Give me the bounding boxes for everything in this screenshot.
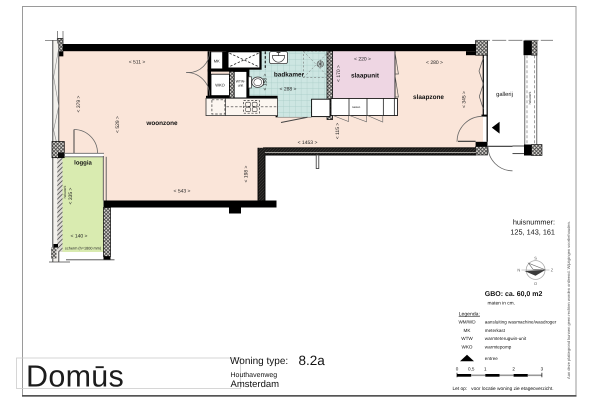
svg-text:125, 143, 161: 125, 143, 161 — [510, 228, 555, 237]
svg-text:< 288 >: < 288 > — [280, 86, 297, 92]
svg-text:< 335 >: < 335 > — [68, 187, 74, 204]
svg-text:warmteterugwin-unit: warmteterugwin-unit — [485, 336, 527, 341]
svg-text:N: N — [517, 268, 520, 273]
svg-text:maten in cm.: maten in cm. — [488, 300, 515, 306]
svg-text:< 529 >: < 529 > — [115, 116, 121, 133]
svg-text:< 1453 >: < 1453 > — [298, 140, 318, 146]
svg-text:scherm (h=1800 mm): scherm (h=1800 mm) — [65, 247, 102, 251]
svg-text:Domūs: Domūs — [26, 359, 124, 393]
svg-text:woonzone: woonzone — [145, 120, 178, 127]
svg-text:< 511 >: < 511 > — [129, 60, 146, 66]
svg-text:< 198 >: < 198 > — [244, 165, 250, 182]
svg-text:< 345 >: < 345 > — [462, 91, 468, 108]
svg-text:Woning type:: Woning type: — [230, 356, 288, 367]
svg-text:warmtepomp: warmtepomp — [485, 345, 512, 350]
svg-text:Houthavenweg: Houthavenweg — [231, 371, 278, 379]
svg-text:slaapzone: slaapzone — [413, 94, 444, 101]
svg-text:WKO: WKO — [215, 83, 225, 88]
svg-text:kasten: kasten — [352, 106, 360, 109]
svg-text:huisnummer:: huisnummer: — [513, 218, 555, 227]
svg-text:3: 3 — [541, 367, 544, 372]
svg-text:< 158 >: < 158 > — [263, 73, 269, 90]
svg-text:S: S — [534, 256, 537, 261]
svg-text:unit: unit — [238, 84, 244, 88]
svg-text:GBO: ca. 60,0 m2: GBO: ca. 60,0 m2 — [485, 291, 543, 298]
svg-text:1: 1 — [484, 367, 487, 372]
svg-text:MK: MK — [464, 328, 472, 333]
svg-text:< 115 >: < 115 > — [335, 123, 341, 140]
svg-text:Legenda:: Legenda: — [459, 311, 480, 317]
svg-text:0: 0 — [456, 367, 459, 372]
svg-text:0,5: 0,5 — [468, 367, 475, 372]
svg-text:Z: Z — [551, 268, 554, 273]
svg-text:< 379 >: < 379 > — [76, 95, 82, 112]
svg-text:WM/WD: WM/WD — [458, 320, 476, 325]
svg-text:2: 2 — [512, 367, 515, 372]
svg-text:MK: MK — [214, 59, 220, 64]
svg-text:< 220 >: < 220 > — [354, 56, 371, 62]
svg-text:slaapunit: slaapunit — [351, 73, 380, 80]
svg-text:entree: entree — [485, 356, 498, 361]
svg-text:Aan deze plattegrond kunnen ge: Aan deze plattegrond kunnen geen rechten… — [566, 221, 571, 379]
svg-text:O: O — [534, 281, 537, 286]
svg-text:< 140 >: < 140 > — [71, 233, 88, 239]
svg-text:Amsterdam: Amsterdam — [231, 379, 280, 390]
svg-text:< 170 >: < 170 > — [336, 65, 342, 82]
svg-text:hekwerk: hekwerk — [63, 185, 67, 198]
svg-text:badkamer: badkamer — [274, 72, 305, 79]
svg-text:loggia: loggia — [74, 159, 92, 166]
svg-text:hekwerk: hekwerk — [528, 91, 532, 104]
svg-text:gallerij: gallerij — [496, 91, 513, 98]
svg-text:8.2a: 8.2a — [299, 353, 326, 368]
svg-text:< 280 >: < 280 > — [426, 60, 443, 66]
svg-text:Let op: voor locatie woning: Let op: voor locatie woning zie etageove… — [453, 386, 554, 392]
svg-text:aansluiting wasmachine/wasdrog: aansluiting wasmachine/wasdroger — [485, 320, 557, 325]
svg-text:WKO: WKO — [462, 345, 473, 350]
svg-text:< 543 >: < 543 > — [174, 188, 191, 194]
svg-text:WTW: WTW — [461, 336, 473, 341]
svg-text:meterkast: meterkast — [485, 328, 506, 333]
